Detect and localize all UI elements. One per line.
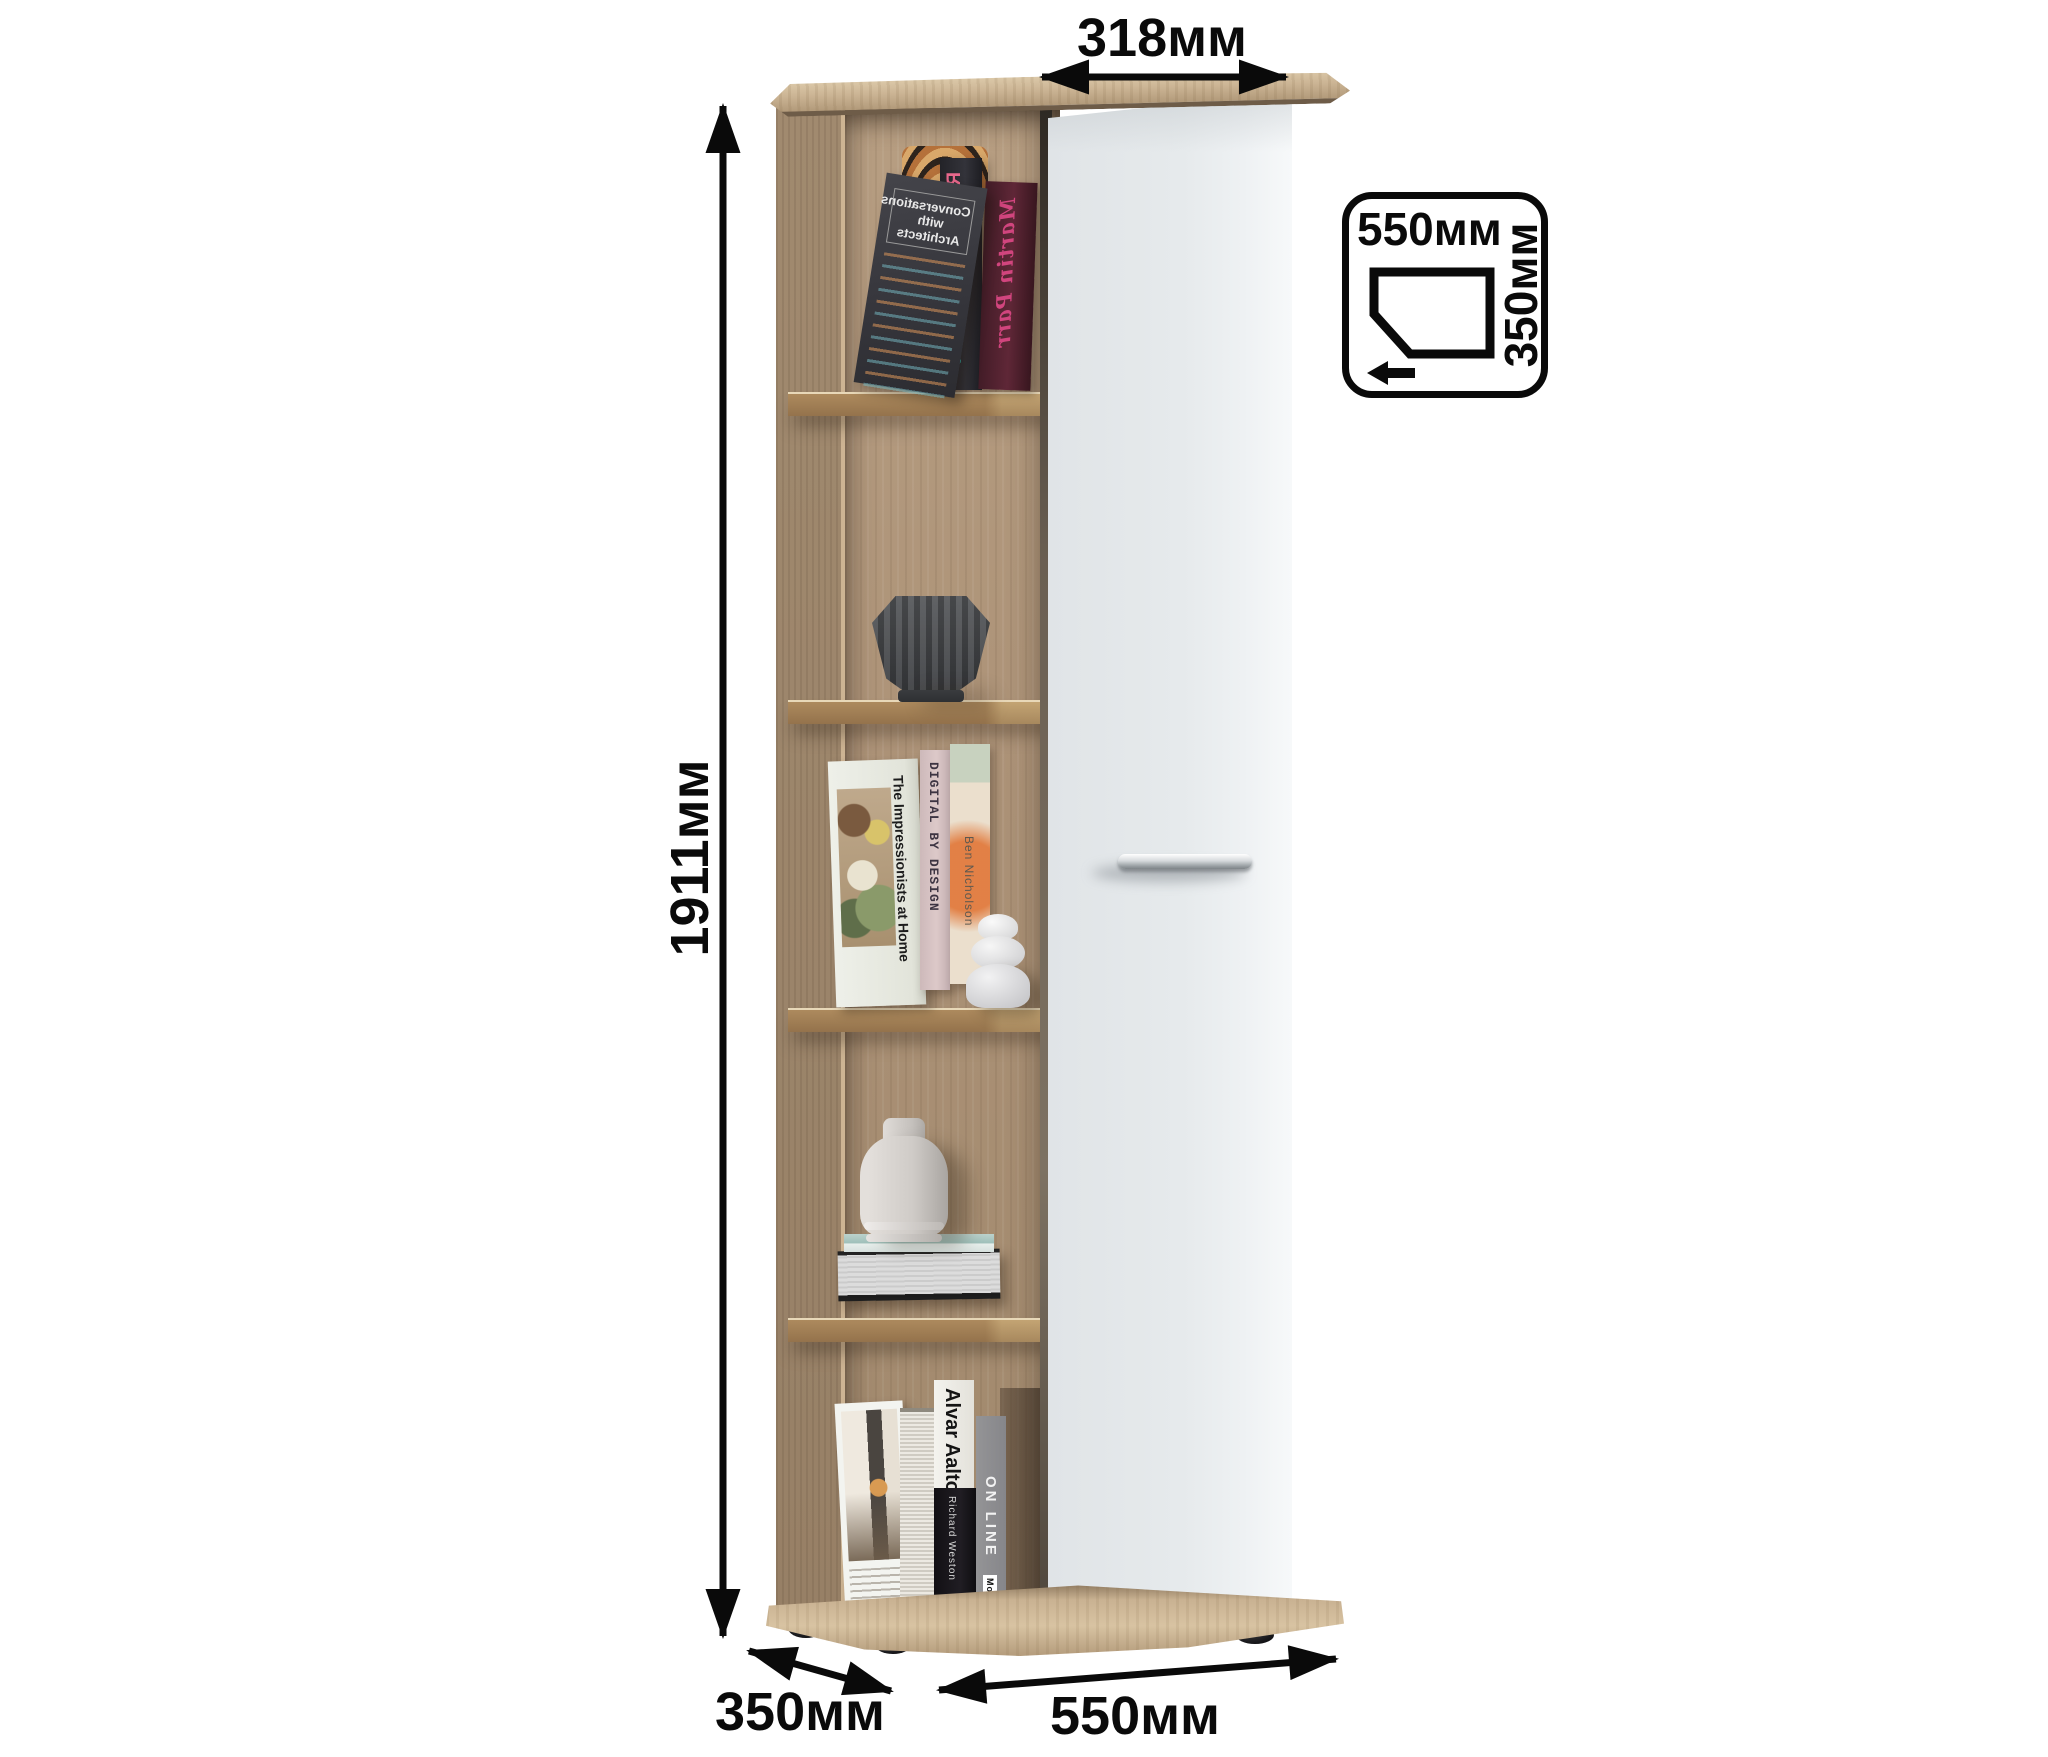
book-on-line: ON LINE MoMA xyxy=(976,1416,1006,1616)
door-width-label: 318мм xyxy=(1047,12,1277,64)
book-ben-nicholson-title: Ben Nicholson xyxy=(962,836,976,926)
front-direction-arrow-icon xyxy=(1367,361,1415,385)
book-martin-parr: Martin Parr xyxy=(978,181,1037,391)
book-digital-title: DIGITAL BY DESIGN xyxy=(926,762,941,912)
top-view-depth-label: 350мм xyxy=(1497,215,1543,375)
book-stack-bottom xyxy=(838,1249,1001,1302)
book-interior-photo-art xyxy=(841,1409,905,1562)
book-richard-weston-author: Richard Weston xyxy=(946,1496,957,1581)
shelf-board-2 xyxy=(788,700,1062,724)
cabinet: Ron Arad No Discipline Martin Parr Conve… xyxy=(0,0,2048,1757)
book-interior-photo-caption xyxy=(849,1566,906,1599)
vase-dark xyxy=(872,596,990,692)
book-impressionists: The Impressionists at Home xyxy=(828,759,927,1008)
book-alvar-aalto-title: Alvar Aalto xyxy=(940,1388,963,1493)
top-view-width-label: 550мм xyxy=(1357,205,1502,253)
book-digital-by-design: DIGITAL BY DESIGN xyxy=(920,750,950,990)
book-conversations-textlines xyxy=(862,252,965,403)
book-impressionists-art xyxy=(837,787,896,947)
jug-gray xyxy=(860,1118,948,1250)
book-pages-edge xyxy=(900,1408,936,1614)
book-on-line-title: ON LINE xyxy=(982,1476,999,1558)
jug-ring xyxy=(864,1222,944,1230)
shelf-board-4 xyxy=(788,1318,1062,1342)
jug-ring-2 xyxy=(866,1234,942,1242)
book-conversations-title: Conversations with Architects xyxy=(886,188,976,255)
jug-body xyxy=(860,1136,948,1236)
vase-white-base xyxy=(966,964,1030,1008)
depth-label: 350мм xyxy=(715,1686,875,1738)
vase-dark-foot xyxy=(898,690,964,702)
top-view-shape xyxy=(1369,267,1495,359)
door-handle xyxy=(1118,854,1252,869)
height-label: 1911мм xyxy=(664,743,716,973)
top-view-box: 550мм 350мм xyxy=(1342,192,1548,398)
book-martin-parr-title: Martin Parr xyxy=(990,197,1020,348)
product-dimension-image: Ron Arad No Discipline Martin Parr Conve… xyxy=(0,0,2048,1757)
vase-white xyxy=(966,914,1030,1008)
shelf-board-3 xyxy=(788,1008,1062,1032)
width-label: 550мм xyxy=(1050,1690,1220,1742)
